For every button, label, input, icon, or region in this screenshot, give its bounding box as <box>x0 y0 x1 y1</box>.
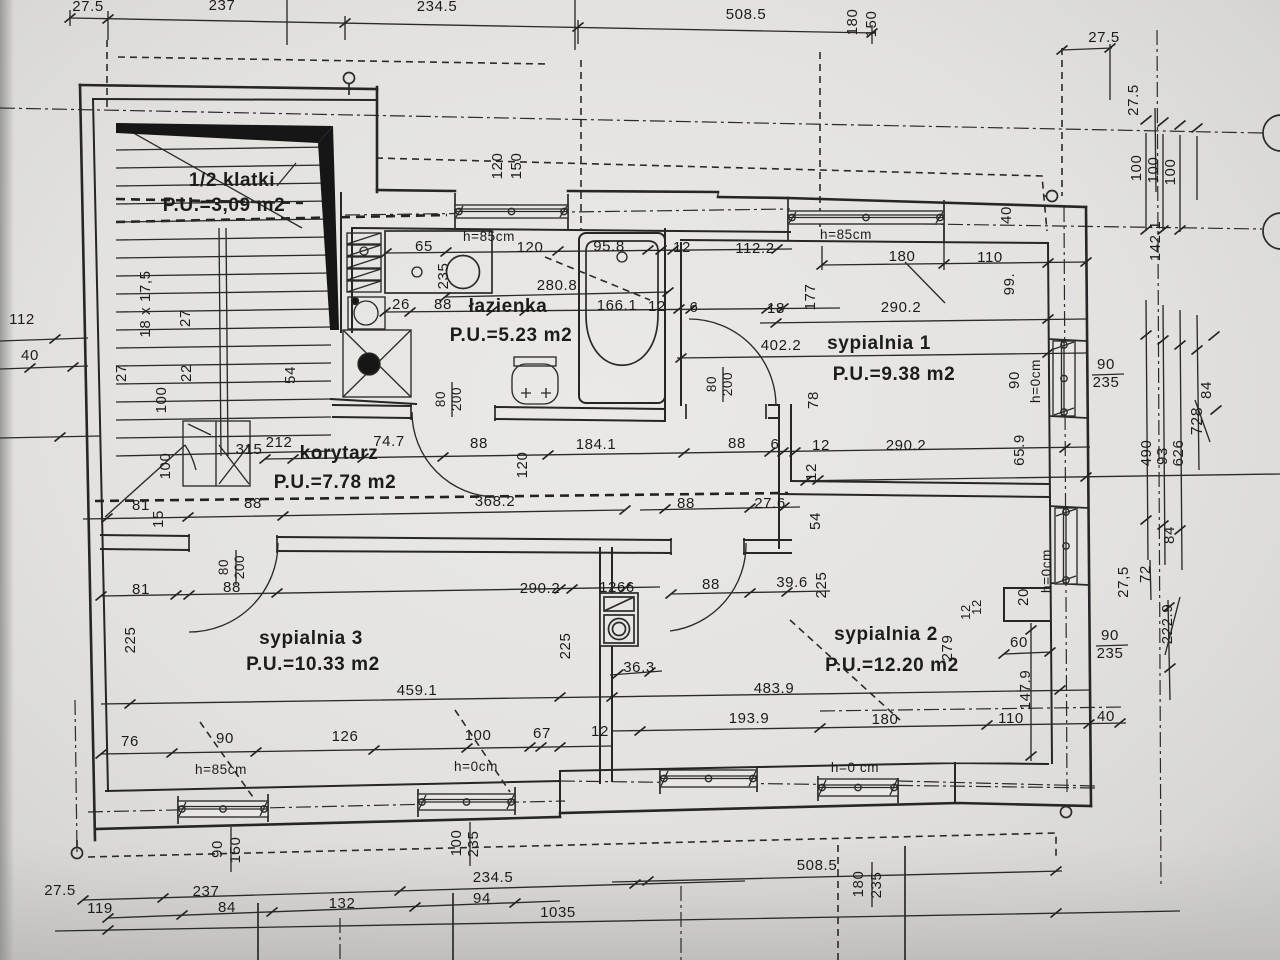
svg-text:99.: 99. <box>1001 273 1018 296</box>
svg-text:142.1: 142.1 <box>1147 221 1164 262</box>
svg-text:490: 490 <box>1138 440 1155 467</box>
svg-text:12: 12 <box>812 437 830 454</box>
svg-text:112.2: 112.2 <box>735 240 774 257</box>
svg-text:90: 90 <box>209 840 226 858</box>
svg-text:40: 40 <box>998 206 1015 224</box>
svg-text:132: 132 <box>329 895 356 912</box>
svg-text:90: 90 <box>1101 627 1119 644</box>
svg-text:27: 27 <box>113 364 130 382</box>
svg-text:626: 626 <box>1170 440 1187 467</box>
svg-text:279: 279 <box>939 635 956 662</box>
svg-text:54: 54 <box>807 512 824 530</box>
svg-text:483.9: 483.9 <box>754 680 795 697</box>
svg-text:39.6: 39.6 <box>776 574 808 591</box>
svg-text:76: 76 <box>121 733 139 750</box>
svg-text:212: 212 <box>266 434 293 451</box>
svg-text:237: 237 <box>193 883 220 900</box>
svg-text:150: 150 <box>863 11 880 38</box>
svg-text:177: 177 <box>802 284 819 311</box>
svg-text:90: 90 <box>1006 371 1023 389</box>
svg-text:90: 90 <box>216 730 234 747</box>
svg-text:80: 80 <box>704 376 719 392</box>
svg-text:74.7: 74.7 <box>373 433 405 450</box>
svg-text:120: 120 <box>514 452 531 479</box>
svg-text:18 x 17,5: 18 x 17,5 <box>137 270 154 337</box>
svg-text:184.1: 184.1 <box>576 436 617 453</box>
svg-text:88: 88 <box>677 495 695 512</box>
svg-text:1/2 klatki: 1/2 klatki <box>189 170 275 191</box>
svg-text:78: 78 <box>805 391 822 409</box>
svg-text:200: 200 <box>232 555 247 579</box>
svg-text:180: 180 <box>872 711 899 728</box>
svg-text:27.5: 27.5 <box>1088 29 1120 46</box>
svg-text:12: 12 <box>591 723 609 740</box>
svg-text:88: 88 <box>434 296 452 313</box>
svg-text:h=85cm: h=85cm <box>463 229 515 244</box>
svg-text:290.2: 290.2 <box>886 437 927 454</box>
svg-text:54: 54 <box>282 366 299 384</box>
svg-text:234.5: 234.5 <box>417 0 458 15</box>
svg-text:84: 84 <box>218 899 236 916</box>
svg-text:459.1: 459.1 <box>397 682 438 699</box>
svg-text:120: 120 <box>489 153 506 180</box>
svg-text:88: 88 <box>223 579 241 596</box>
svg-text:180: 180 <box>850 871 867 898</box>
svg-text:6: 6 <box>690 299 699 316</box>
svg-text:315: 315 <box>236 441 263 458</box>
svg-text:12: 12 <box>803 463 820 481</box>
svg-text:88: 88 <box>470 435 488 452</box>
svg-text:120: 120 <box>517 239 544 256</box>
svg-text:94: 94 <box>473 890 491 907</box>
svg-text:234.5: 234.5 <box>473 869 514 886</box>
svg-text:119: 119 <box>87 900 113 917</box>
svg-text:728: 728 <box>1189 407 1206 436</box>
svg-text:180: 180 <box>844 9 861 36</box>
svg-text:280.8: 280.8 <box>537 277 578 294</box>
svg-text:72: 72 <box>1137 565 1154 583</box>
svg-text:235: 235 <box>435 263 452 290</box>
svg-text:90: 90 <box>1097 356 1115 373</box>
svg-text:27.5: 27.5 <box>1125 84 1142 116</box>
svg-text:60: 60 <box>1010 634 1028 651</box>
svg-text:100: 100 <box>157 453 174 480</box>
svg-text:65.9: 65.9 <box>1011 434 1028 466</box>
svg-text:290.2: 290.2 <box>881 299 922 316</box>
svg-text:18: 18 <box>767 300 785 317</box>
svg-text:225: 225 <box>122 627 139 654</box>
svg-text:93: 93 <box>1154 447 1171 465</box>
svg-text:1035: 1035 <box>540 904 576 921</box>
svg-text:402.2: 402.2 <box>761 337 802 354</box>
svg-text:P.U.=9.38 m2: P.U.=9.38 m2 <box>833 364 956 385</box>
svg-text:166.1: 166.1 <box>597 297 638 314</box>
svg-text:95.8: 95.8 <box>593 238 625 255</box>
svg-text:40: 40 <box>21 347 39 364</box>
svg-text:łazienka: łazienka <box>469 296 548 317</box>
svg-text:27.5: 27.5 <box>72 0 104 15</box>
svg-text:150: 150 <box>227 837 244 864</box>
svg-text:h=0cm: h=0cm <box>1028 359 1043 403</box>
svg-text:20: 20 <box>1015 588 1032 606</box>
svg-text:235: 235 <box>1097 645 1124 662</box>
svg-text:27: 27 <box>177 309 194 327</box>
svg-text:27.6: 27.6 <box>754 495 786 512</box>
svg-text:235: 235 <box>465 831 482 858</box>
svg-text:508.5: 508.5 <box>797 857 838 874</box>
svg-text:22: 22 <box>178 364 195 382</box>
svg-text:235: 235 <box>1093 374 1120 391</box>
svg-text:27,5: 27,5 <box>1115 566 1132 598</box>
svg-text:100: 100 <box>448 830 465 857</box>
svg-text:26: 26 <box>392 296 410 313</box>
svg-text:508.5: 508.5 <box>726 6 767 23</box>
svg-text:12: 12 <box>648 298 666 315</box>
svg-text:225: 225 <box>813 572 830 599</box>
svg-text:P.U.=5.23 m2: P.U.=5.23 m2 <box>450 325 573 346</box>
svg-text:100: 100 <box>1162 159 1179 186</box>
svg-text:sypialnia 3: sypialnia 3 <box>259 628 363 649</box>
svg-text:40: 40 <box>1097 708 1115 725</box>
svg-text:126: 126 <box>332 728 359 745</box>
svg-text:290.2: 290.2 <box>520 580 561 597</box>
svg-text:1266: 1266 <box>599 579 635 596</box>
svg-text:100: 100 <box>1145 157 1162 184</box>
svg-text:84: 84 <box>1198 381 1215 399</box>
svg-text:88: 88 <box>702 576 720 593</box>
svg-text:65: 65 <box>415 238 433 255</box>
svg-text:88: 88 <box>244 495 262 512</box>
svg-text:147.9: 147.9 <box>1017 670 1034 711</box>
svg-text:180: 180 <box>889 248 916 265</box>
svg-text:100: 100 <box>1128 155 1145 182</box>
svg-text:193.9: 193.9 <box>729 710 770 727</box>
svg-text:12: 12 <box>673 239 691 256</box>
svg-text:6: 6 <box>771 436 780 453</box>
svg-text:235: 235 <box>868 872 885 899</box>
svg-text:h=85cm: h=85cm <box>820 227 872 242</box>
svg-text:P.U.=7.78 m2: P.U.=7.78 m2 <box>274 472 397 493</box>
svg-text:sypialnia 2: sypialnia 2 <box>834 624 938 645</box>
svg-text:110: 110 <box>998 710 1024 727</box>
svg-text:81: 81 <box>132 581 150 598</box>
svg-text:h=0cm: h=0cm <box>1039 549 1054 593</box>
svg-text:200: 200 <box>449 387 464 411</box>
svg-text:88: 88 <box>728 435 746 452</box>
svg-text:81: 81 <box>132 497 150 514</box>
svg-text:368.2: 368.2 <box>475 493 516 510</box>
svg-text:h=85cm: h=85cm <box>195 762 247 777</box>
svg-text:P.U.=10.33 m2: P.U.=10.33 m2 <box>246 654 380 675</box>
svg-text:h=0 cm: h=0 cm <box>831 760 879 775</box>
svg-text:80: 80 <box>216 559 231 575</box>
svg-text:150: 150 <box>508 153 525 180</box>
svg-text:100: 100 <box>465 727 492 744</box>
svg-text:200: 200 <box>720 372 735 396</box>
svg-text:100: 100 <box>153 387 170 414</box>
svg-text:P.U.=3,09 m2: P.U.=3,09 m2 <box>163 195 286 216</box>
svg-text:112: 112 <box>9 311 35 328</box>
svg-text:12: 12 <box>969 599 984 615</box>
svg-text:225: 225 <box>557 633 574 660</box>
svg-text:27.5: 27.5 <box>44 882 76 899</box>
svg-text:237: 237 <box>209 0 236 14</box>
svg-text:80: 80 <box>433 391 448 407</box>
svg-text:korytarz: korytarz <box>300 443 379 464</box>
svg-text:sypialnia 1: sypialnia 1 <box>827 333 931 354</box>
svg-text:67: 67 <box>533 725 551 742</box>
svg-text:36.3: 36.3 <box>623 659 655 676</box>
svg-text:110: 110 <box>977 249 1003 266</box>
svg-text:15: 15 <box>150 510 167 528</box>
svg-text:84: 84 <box>1161 526 1178 544</box>
svg-text:h=0cm: h=0cm <box>454 759 498 774</box>
